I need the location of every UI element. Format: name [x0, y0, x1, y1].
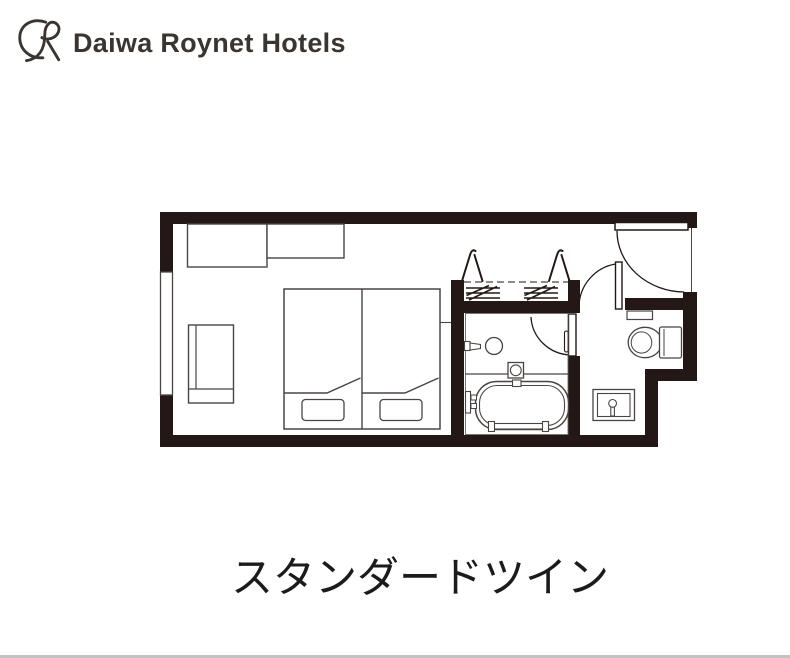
bath-stool: [508, 363, 524, 379]
tv-counter: [267, 224, 344, 258]
toilet-tank: [660, 327, 682, 358]
toilet: [628, 327, 681, 358]
luggage-shelf-icon: [466, 286, 500, 301]
toilet-shelf: [627, 311, 653, 320]
hall-door: [579, 262, 622, 309]
washbasin: [486, 338, 503, 355]
desk: [188, 224, 268, 267]
tub-drain-knob: [513, 380, 522, 387]
luggage-shelf-icon: [524, 286, 558, 301]
clothes-hanger-icon: [549, 250, 570, 281]
closet: [462, 250, 570, 300]
lounge-chair: [189, 325, 234, 403]
window: [161, 272, 173, 395]
toilet-room: [593, 311, 682, 421]
pillow: [302, 400, 344, 421]
bathroom-door: [531, 314, 576, 356]
clothes-hanger-icon: [462, 250, 483, 281]
entrance-door: [615, 223, 688, 293]
vanity-sink: [593, 390, 635, 421]
room-type-title: スタンダードツイン: [25, 544, 790, 605]
door-handle: [565, 331, 569, 352]
bathroom: [465, 314, 569, 435]
washbasin-faucet-icon: [465, 342, 481, 351]
twin-beds: [284, 289, 451, 429]
bathtub: [466, 380, 569, 432]
pillow: [380, 400, 422, 421]
